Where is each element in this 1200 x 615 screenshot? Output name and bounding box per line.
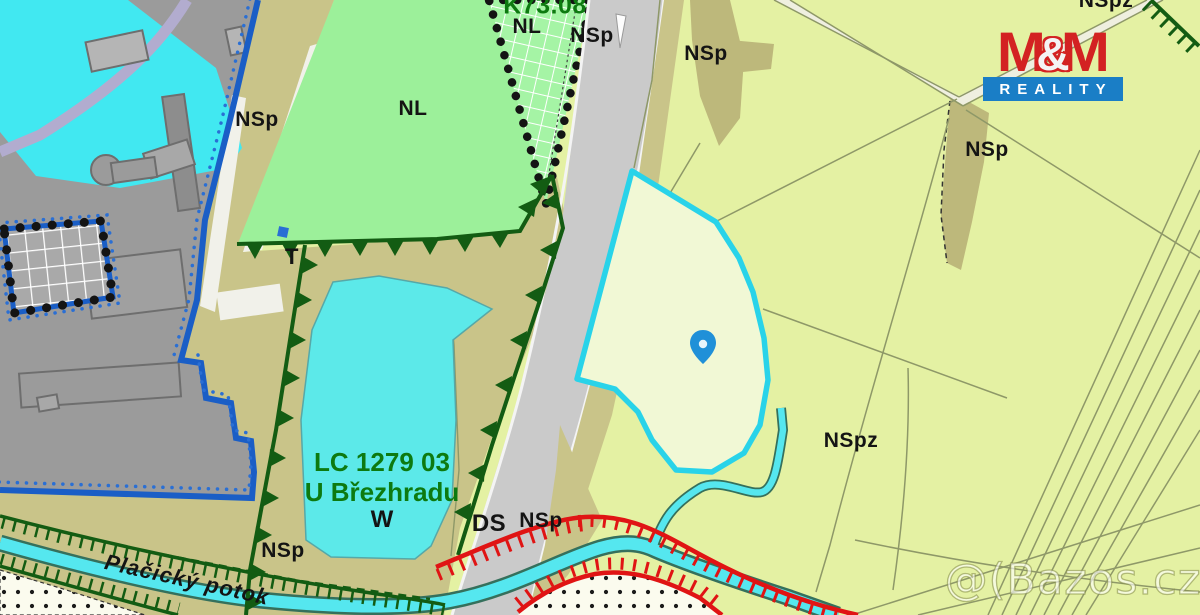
zoning-map-image[interactable]: K73.08 NL NL NSp NSp NSp NSp NSp NSp NSp… [0,0,1200,615]
label-nsp-bottomleft: NSp [261,539,305,563]
label-t: T [285,244,299,270]
label-nsp-patch: NSp [684,42,728,66]
label-ds: DS [472,510,506,538]
bazos-watermark: @(Bazos.cz [945,555,1200,605]
lc-plot-code: LC 1279 03 [305,447,460,477]
lc-plot-label-block: LC 1279 03 U Březhradu W [305,447,460,533]
label-nsp-wedge: NSp [519,509,563,533]
label-nl-main: NL [399,97,428,121]
label-nspz-top: NSpz [1079,0,1134,13]
label-nsp-right: NSp [965,138,1009,162]
label-nsp-topleft: NSp [235,108,279,132]
label-nl-top: NL [513,15,542,39]
label-nsp-road: NSp [570,24,614,48]
mm-reality-logo: M & M REALITY [983,22,1123,101]
lc-plot-w: W [305,507,460,533]
mm-reality-logo-mark: M & M [983,22,1123,74]
lc-plot-name: U Březhradu [305,477,460,507]
t-utility-marker [277,226,289,238]
logo-ampersand: & [1036,34,1069,74]
label-nspz-main: NSpz [824,429,879,453]
